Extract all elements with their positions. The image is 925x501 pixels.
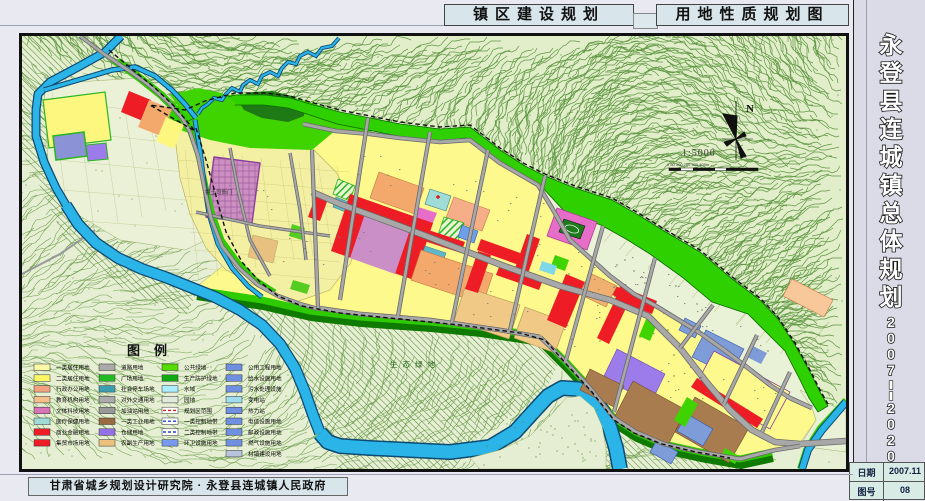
svg-text:热力站: 热力站 [248, 407, 265, 415]
svg-text:园地: 园地 [184, 396, 196, 404]
svg-text:0: 0 [887, 330, 895, 346]
svg-text:N: N [746, 103, 754, 115]
svg-text:仓储用地: 仓储用地 [121, 428, 144, 436]
svg-text:2: 2 [887, 314, 895, 330]
svg-text:生态绿地: 生态绿地 [390, 359, 440, 369]
svg-text:邮政设施用地: 邮政设施用地 [248, 428, 282, 436]
svg-text:县: 县 [880, 88, 903, 114]
svg-text:鲁土司衙门: 鲁土司衙门 [205, 188, 233, 196]
svg-text:环卫设施用地: 环卫设施用地 [184, 439, 218, 447]
svg-text:水域: 水域 [184, 385, 196, 393]
svg-text:教育机构用地: 教育机构用地 [56, 396, 90, 404]
svg-text:城: 城 [880, 144, 903, 170]
svg-text:总: 总 [880, 200, 903, 226]
svg-text:0: 0 [887, 346, 895, 362]
svg-text:二类控制地带: 二类控制地带 [184, 428, 218, 436]
svg-text:公用工程用地: 公用工程用地 [248, 364, 282, 372]
svg-text:村镇建设用地: 村镇建设用地 [248, 450, 282, 458]
svg-text:永: 永 [880, 32, 903, 58]
svg-text:道路用地: 道路用地 [121, 364, 144, 372]
svg-text:公共绿地: 公共绿地 [184, 364, 207, 372]
svg-text:对外交通用地: 对外交通用地 [121, 396, 155, 404]
svg-text:0: 0 [887, 416, 895, 432]
svg-text:生产防护绿地: 生产防护绿地 [184, 374, 218, 382]
svg-text:加油站用地: 加油站用地 [121, 407, 149, 415]
svg-text:镇: 镇 [880, 172, 903, 198]
svg-text:电信设施用地: 电信设施用地 [248, 418, 282, 426]
svg-text:集贸市场用地: 集贸市场用地 [56, 439, 90, 447]
svg-text:2: 2 [887, 400, 895, 416]
svg-text:一类居住用地: 一类居住用地 [56, 364, 90, 372]
svg-text:2: 2 [887, 432, 895, 448]
svg-text:变电站: 变电站 [248, 396, 265, 404]
svg-text:社会停车场地: 社会停车场地 [121, 385, 155, 393]
svg-text:7: 7 [887, 362, 895, 378]
svg-text:1:5000: 1:5000 [682, 148, 716, 159]
svg-text:行政办公用地: 行政办公用地 [56, 385, 90, 393]
svg-text:一类工业用地: 一类工业用地 [121, 418, 155, 426]
svg-text:医疗保健用地: 医疗保健用地 [56, 418, 90, 426]
svg-text:0 50 100 200 300: 0 50 100 200 300 400m [667, 162, 710, 167]
svg-text:污水处理设施: 污水处理设施 [248, 385, 282, 393]
svg-text:广场用地: 广场用地 [121, 374, 144, 382]
svg-text:商业金融用地: 商业金融用地 [56, 428, 90, 436]
svg-text:燃气设施用地: 燃气设施用地 [248, 439, 282, 447]
svg-text:体: 体 [880, 228, 904, 254]
svg-text:文体科技用地: 文体科技用地 [56, 407, 90, 415]
svg-text:规划区范围: 规划区范围 [184, 407, 212, 415]
svg-text:登: 登 [879, 60, 904, 86]
svg-text:给水设施用地: 给水设施用地 [248, 374, 282, 382]
svg-text:二类居住用地: 二类居住用地 [56, 374, 90, 382]
svg-text:农副生产用地: 农副生产用地 [121, 439, 155, 447]
svg-text:划: 划 [880, 284, 903, 310]
svg-text:连: 连 [880, 116, 904, 142]
svg-text:一类控制地带: 一类控制地带 [184, 418, 218, 426]
svg-text:规: 规 [880, 256, 903, 282]
svg-text:图例: 图例 [127, 343, 181, 358]
